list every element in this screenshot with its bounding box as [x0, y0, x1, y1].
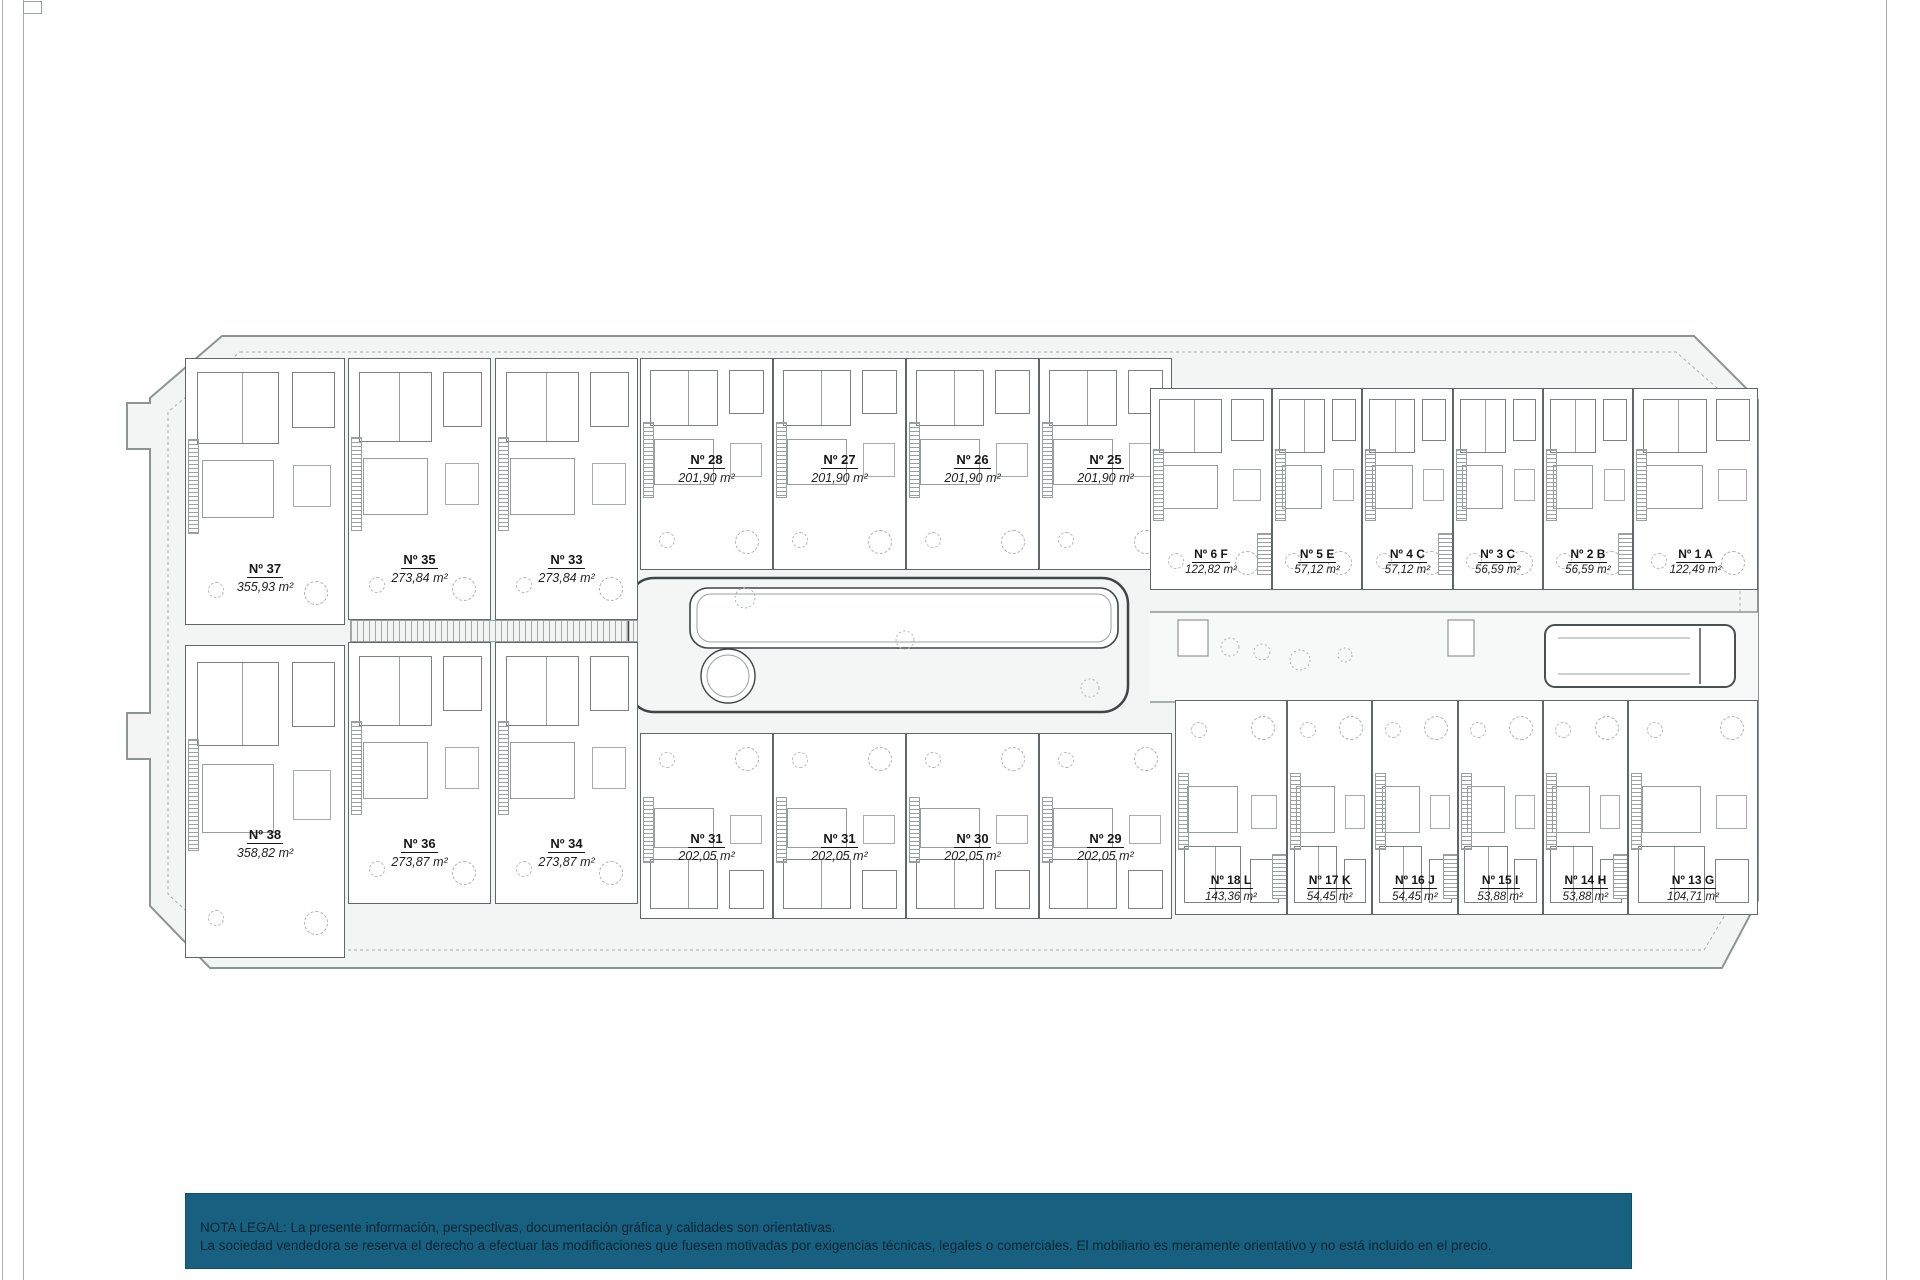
unit-floorplan-linework: [774, 734, 905, 918]
unit-floorplan-linework: [641, 734, 772, 918]
unit-label: Nº 3 C 56,59 m²: [1454, 545, 1542, 578]
unit-cell: Nº 27 201,90 m²: [773, 358, 906, 570]
unit-cell: Nº 31 202,05 m²: [773, 733, 906, 919]
unit-label: Nº 1 A 122,49 m²: [1634, 545, 1757, 578]
unit-label: Nº 5 E 57,12 m²: [1273, 545, 1361, 578]
townhouses-south-group: Nº 31 202,05 m² Nº 31 202,05 m² Nº 30 20…: [640, 733, 1172, 919]
page-border-line-right: [1886, 0, 1887, 1280]
unit-cell: Nº 5 E 57,12 m²: [1272, 388, 1362, 590]
unit-area: 273,84 m²: [496, 571, 637, 585]
unit-number: Nº 38: [247, 828, 283, 844]
unit-area: 143,36 m²: [1176, 891, 1286, 904]
unit-label: Nº 26 201,90 m²: [907, 451, 1038, 485]
unit-number: Nº 31: [688, 832, 724, 848]
unit-number: Nº 26: [954, 453, 990, 469]
driveway-hatch: [350, 620, 638, 642]
unit-label: Nº 31 202,05 m²: [774, 830, 905, 864]
unit-number: Nº 31: [821, 832, 857, 848]
unit-label: Nº 6 F 122,82 m²: [1151, 545, 1271, 578]
pool-deck: [628, 578, 1128, 712]
unit-number: Nº 29: [1087, 832, 1123, 848]
unit-cell: Nº 36 273,87 m²: [348, 642, 491, 904]
unit-number: Nº 36: [401, 837, 437, 853]
unit-label: Nº 30 202,05 m²: [907, 830, 1038, 864]
unit-area: 54,45 m²: [1288, 891, 1371, 904]
legal-notice-line2: La sociedad vendedora se reserva el dere…: [200, 1238, 1491, 1253]
unit-area: 358,82 m²: [186, 846, 344, 860]
unit-area: 54,45 m²: [1373, 891, 1456, 904]
page-corner-artifact: [23, 1, 42, 14]
unit-number: Nº 30: [954, 832, 990, 848]
road-utility-box: [1448, 620, 1474, 656]
detached-plots-group: Nº 37 355,93 m² Nº 38 358,82 m²: [185, 358, 345, 958]
unit-number: Nº 16 J: [1393, 874, 1437, 889]
unit-cell: Nº 37 355,93 m²: [185, 358, 345, 625]
pool: [690, 588, 1118, 648]
unit-number: Nº 14 H: [1563, 874, 1609, 889]
unit-area: 201,90 m²: [1040, 471, 1171, 485]
unit-cell: Nº 38 358,82 m²: [185, 645, 345, 958]
unit-number: Nº 35: [401, 553, 437, 569]
unit-area: 355,93 m²: [186, 580, 344, 594]
unit-number: Nº 33: [548, 553, 584, 569]
unit-cell: Nº 14 H 53,88 m²: [1543, 700, 1628, 915]
unit-cell: Nº 4 C 57,12 m²: [1362, 388, 1452, 590]
unit-cell: Nº 28 201,90 m²: [640, 358, 773, 570]
unit-number: Nº 17 K: [1307, 874, 1353, 889]
unit-label: Nº 14 H 53,88 m²: [1544, 871, 1627, 904]
unit-area: 104,71 m²: [1629, 891, 1757, 904]
spa-pool: [701, 649, 755, 703]
unit-area: 273,87 m²: [349, 855, 490, 869]
unit-cell: Nº 1 A 122,49 m²: [1633, 388, 1758, 590]
unit-cell: Nº 31 202,05 m²: [640, 733, 773, 919]
unit-cell: Nº 34 273,87 m²: [495, 642, 638, 904]
unit-label: Nº 13 G 104,71 m²: [1629, 871, 1757, 904]
unit-number: Nº 1 A: [1676, 548, 1715, 563]
unit-area: 273,87 m²: [496, 855, 637, 869]
unit-number: Nº 25: [1087, 453, 1123, 469]
unit-label: Nº 29 202,05 m²: [1040, 830, 1171, 864]
apartments-north-group: Nº 6 F 122,82 m² Nº 5 E 57,12 m² Nº 4 C …: [1150, 388, 1758, 590]
unit-label: Nº 16 J 54,45 m²: [1373, 871, 1456, 904]
unit-area: 273,84 m²: [349, 571, 490, 585]
vehicle-icon: [1545, 625, 1735, 687]
unit-area: 202,05 m²: [774, 849, 905, 863]
unit-label: Nº 27 201,90 m²: [774, 451, 905, 485]
unit-area: 201,90 m²: [641, 471, 772, 485]
unit-label: Nº 25 201,90 m²: [1040, 451, 1171, 485]
unit-cell: Nº 15 I 53,88 m²: [1458, 700, 1543, 915]
unit-label: Nº 35 273,84 m²: [349, 551, 490, 585]
unit-number: Nº 34: [548, 837, 584, 853]
unit-number: Nº 15 I: [1480, 874, 1520, 889]
unit-label: Nº 4 C 57,12 m²: [1363, 545, 1451, 578]
unit-label: Nº 36 273,87 m²: [349, 835, 490, 869]
unit-number: Nº 2 B: [1568, 548, 1607, 563]
unit-cell: Nº 30 202,05 m²: [906, 733, 1039, 919]
unit-label: Nº 37 355,93 m²: [186, 560, 344, 594]
unit-number: Nº 28: [688, 453, 724, 469]
unit-cell: Nº 3 C 56,59 m²: [1453, 388, 1543, 590]
unit-label: Nº 31 202,05 m²: [641, 830, 772, 864]
unit-label: Nº 28 201,90 m²: [641, 451, 772, 485]
unit-area: 57,12 m²: [1273, 564, 1361, 577]
road-utility-box: [1178, 620, 1208, 656]
page: Nº 37 355,93 m² Nº 38 358,82 m² Nº 35 27…: [0, 0, 1920, 1280]
unit-number: Nº 13 G: [1670, 874, 1716, 889]
unit-area: 53,88 m²: [1544, 891, 1627, 904]
unit-area: 56,59 m²: [1454, 564, 1542, 577]
unit-area: 122,49 m²: [1634, 564, 1757, 577]
road-area: [1150, 612, 1758, 702]
unit-number: Nº 18 L: [1209, 874, 1253, 889]
unit-label: Nº 17 K 54,45 m²: [1288, 871, 1371, 904]
unit-cell: Nº 2 B 56,59 m²: [1543, 388, 1633, 590]
unit-area: 56,59 m²: [1544, 564, 1632, 577]
unit-label: Nº 38 358,82 m²: [186, 826, 344, 860]
page-edge-line-left: [2, 0, 3, 1280]
unit-label: Nº 15 I 53,88 m²: [1459, 871, 1542, 904]
unit-number: Nº 5 E: [1298, 548, 1336, 563]
legal-notice-bar: NOTA LEGAL: La presente información, per…: [185, 1193, 1632, 1269]
unit-cell: Nº 26 201,90 m²: [906, 358, 1039, 570]
unit-area: 53,88 m²: [1459, 891, 1542, 904]
unit-area: 122,82 m²: [1151, 564, 1271, 577]
unit-label: Nº 34 273,87 m²: [496, 835, 637, 869]
townhouses-north-group: Nº 28 201,90 m² Nº 27 201,90 m² Nº 26 20…: [640, 358, 1172, 570]
unit-number: Nº 3 C: [1478, 548, 1517, 563]
unit-floorplan-linework: [1040, 734, 1171, 918]
unit-cell: Nº 6 F 122,82 m²: [1150, 388, 1272, 590]
unit-label: Nº 33 273,84 m²: [496, 551, 637, 585]
unit-label: Nº 18 L 143,36 m²: [1176, 871, 1286, 904]
unit-area: 202,05 m²: [907, 849, 1038, 863]
unit-floorplan-linework: [186, 646, 344, 957]
unit-area: 202,05 m²: [1040, 849, 1171, 863]
unit-floorplan-linework: [907, 734, 1038, 918]
unit-area: 57,12 m²: [1363, 564, 1451, 577]
unit-cell: Nº 33 273,84 m²: [495, 358, 638, 620]
unit-cell: Nº 35 273,84 m²: [348, 358, 491, 620]
page-border-line-left: [23, 0, 24, 1280]
unit-cell: Nº 13 G 104,71 m²: [1628, 700, 1758, 915]
unit-cell: Nº 29 202,05 m²: [1039, 733, 1172, 919]
unit-area: 201,90 m²: [774, 471, 905, 485]
unit-area: 202,05 m²: [641, 849, 772, 863]
unit-number: Nº 4 C: [1388, 548, 1427, 563]
legal-notice-line1: NOTA LEGAL: La presente información, per…: [200, 1220, 835, 1235]
unit-number: Nº 37: [247, 562, 283, 578]
unit-cell: Nº 17 K 54,45 m²: [1287, 700, 1372, 915]
unit-area: 201,90 m²: [907, 471, 1038, 485]
unit-label: Nº 2 B 56,59 m²: [1544, 545, 1632, 578]
unit-number: Nº 6 F: [1192, 548, 1230, 563]
unit-cell: Nº 16 J 54,45 m²: [1372, 700, 1457, 915]
unit-number: Nº 27: [821, 453, 857, 469]
unit-cell: Nº 18 L 143,36 m²: [1175, 700, 1287, 915]
apartments-south-group: Nº 18 L 143,36 m² Nº 17 K 54,45 m² Nº 16…: [1175, 700, 1758, 915]
